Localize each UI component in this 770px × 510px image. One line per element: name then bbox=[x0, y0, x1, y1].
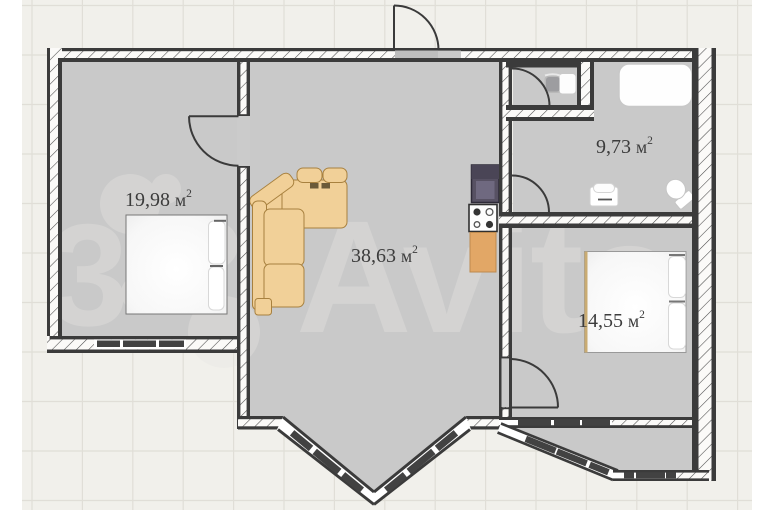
svg-text:19,98 м2: 19,98 м2 bbox=[125, 188, 192, 211]
svg-text:14,55 м2: 14,55 м2 bbox=[578, 309, 645, 332]
svg-text:38,63 м2: 38,63 м2 bbox=[351, 244, 418, 267]
svg-text:9,73 м2: 9,73 м2 bbox=[596, 135, 653, 158]
